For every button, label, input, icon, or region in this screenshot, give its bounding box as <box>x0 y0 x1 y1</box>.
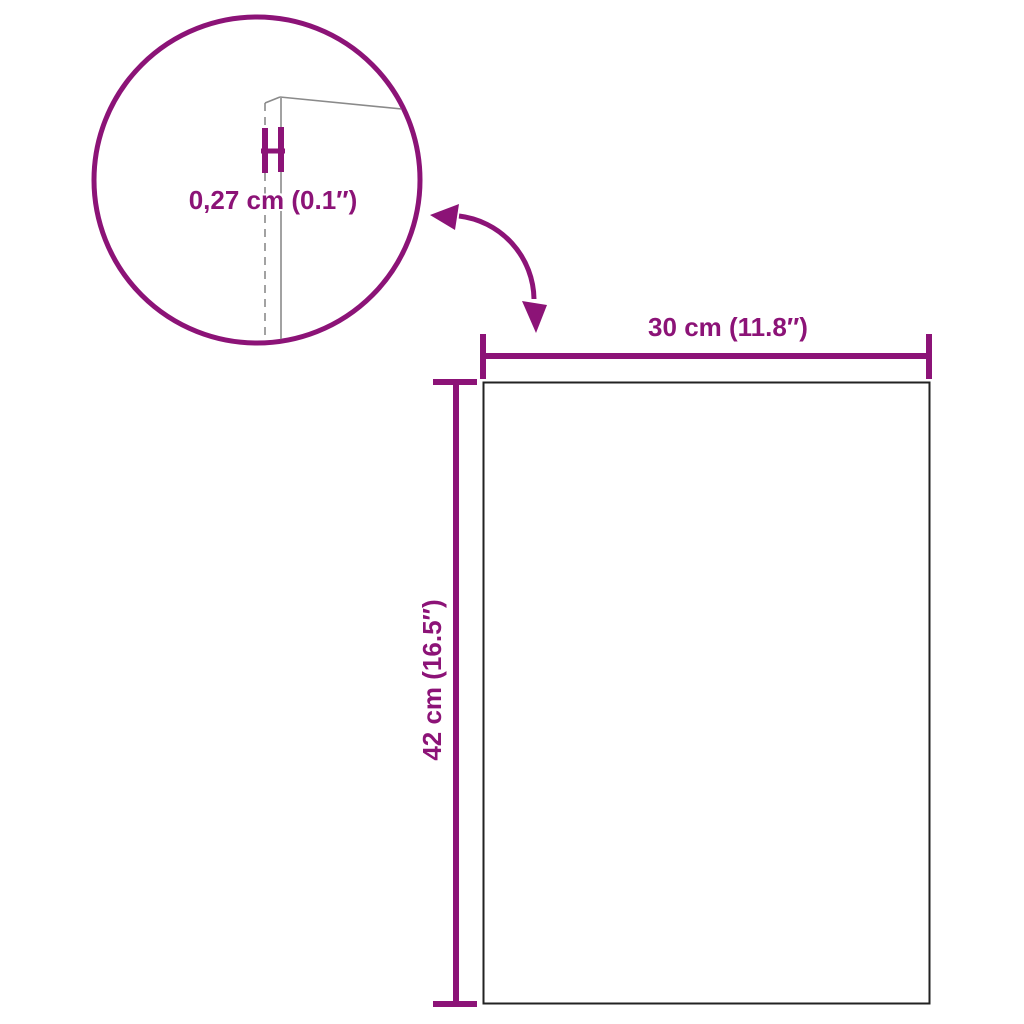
thickness-marker <box>261 127 285 173</box>
zoom-arrow-head-to-circle-icon <box>430 204 459 230</box>
panel-edge-detail <box>265 97 412 350</box>
height-label: 42 cm (16.5″) <box>417 530 447 830</box>
product-panel-rect <box>484 383 930 1004</box>
panel-top-right-edge-line <box>280 97 412 110</box>
panel-top-left-edge-line <box>265 97 280 103</box>
zoom-arrow <box>430 204 547 333</box>
diagram-linework <box>0 0 1024 1024</box>
magnifier-circle <box>94 17 420 343</box>
thickness-label: 0,27 cm (0.1″) <box>123 185 423 215</box>
zoom-arrow-head-to-panel-icon <box>522 301 547 333</box>
width-label: 30 cm (11.8″) <box>578 312 878 342</box>
zoom-arrow-arc <box>459 216 534 299</box>
dimension-diagram: 0,27 cm (0.1″) 30 cm (11.8″) 42 cm (16.5… <box>0 0 1024 1024</box>
